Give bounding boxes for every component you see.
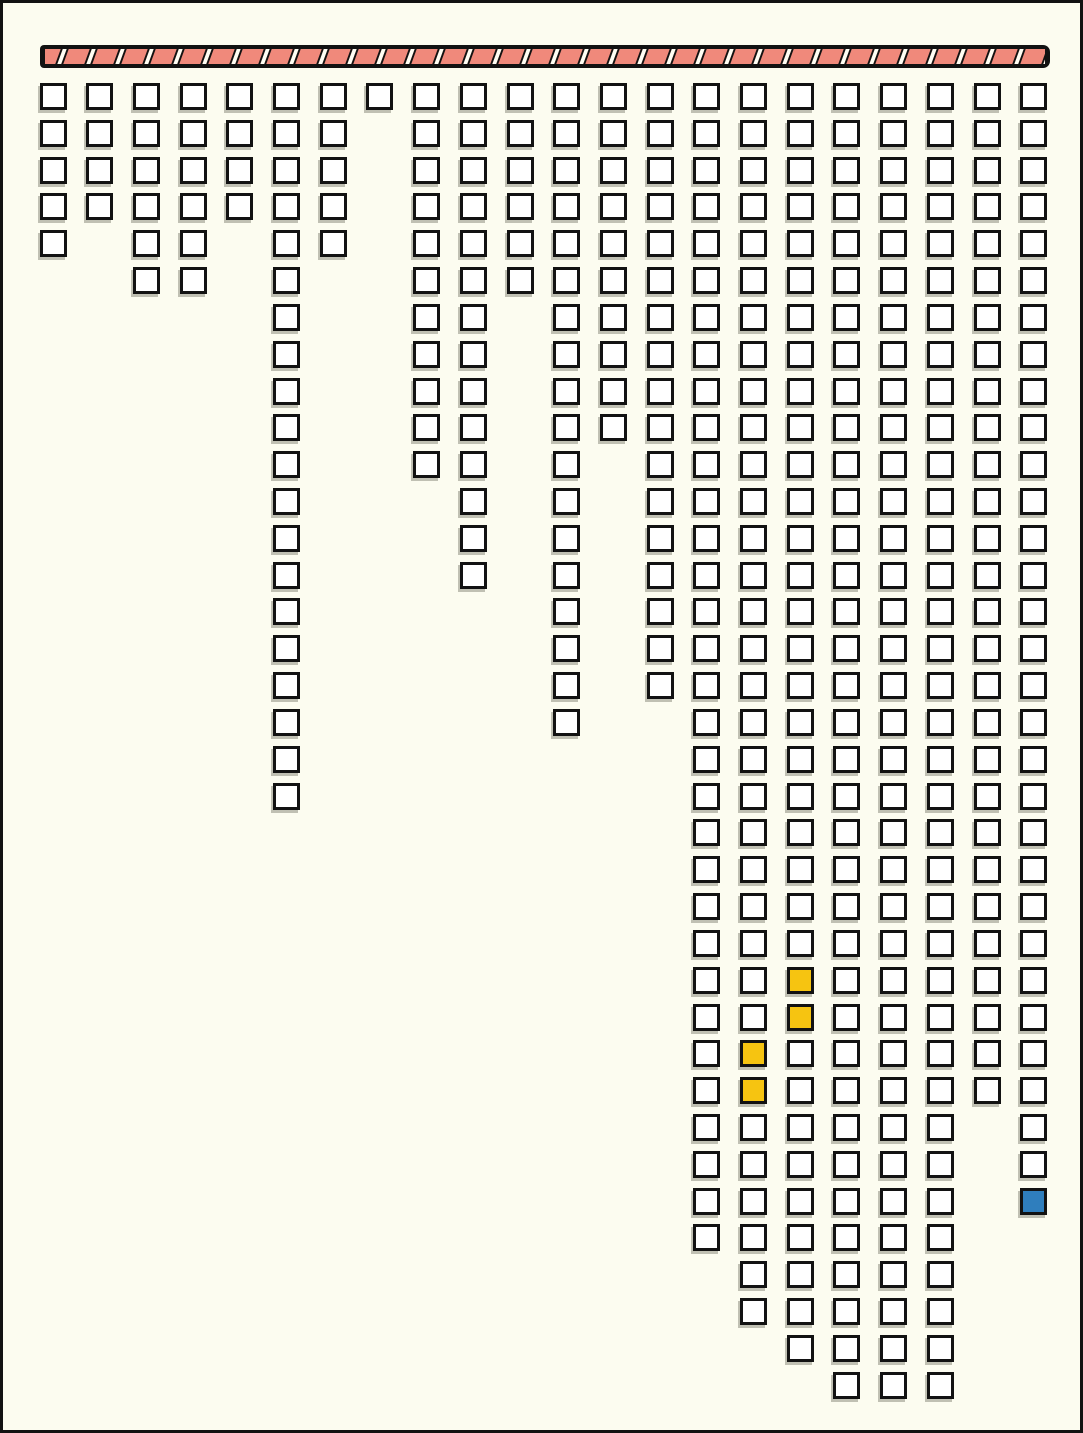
unit-square [740, 967, 767, 994]
unit-square [693, 856, 720, 883]
unit-square [787, 488, 814, 515]
unit-square [507, 120, 534, 147]
unit-square [787, 378, 814, 405]
unit-square [1020, 341, 1047, 368]
unit-square [1020, 856, 1047, 883]
unit-square [833, 635, 860, 662]
unit-square [1020, 378, 1047, 405]
unit-square [833, 1040, 860, 1067]
unit-square [974, 341, 1001, 368]
unit-square [927, 120, 954, 147]
unit-square [40, 120, 67, 147]
unit-square [460, 193, 487, 220]
unit-square [787, 1261, 814, 1288]
unit-square [927, 1335, 954, 1362]
unit-square [86, 157, 113, 184]
unit-square [974, 930, 1001, 957]
unit-square [693, 1004, 720, 1031]
unit-square [553, 157, 580, 184]
unit-square [413, 230, 440, 257]
unit-square [647, 193, 674, 220]
unit-square [833, 1151, 860, 1178]
unit-square [974, 488, 1001, 515]
unit-square [320, 83, 347, 110]
unit-square [273, 783, 300, 810]
unit-square [553, 267, 580, 294]
unit-square [647, 562, 674, 589]
unit-square [600, 414, 627, 441]
unit-square [927, 83, 954, 110]
unit-square [226, 157, 253, 184]
unit-square [693, 598, 720, 625]
unit-square [647, 230, 674, 257]
unit-square [647, 488, 674, 515]
unit-square [880, 341, 907, 368]
unit-square [880, 230, 907, 257]
unit-square [974, 893, 1001, 920]
unit-square [880, 856, 907, 883]
unit-square [273, 230, 300, 257]
unit-square [880, 488, 907, 515]
unit-square [1020, 525, 1047, 552]
unit-square [880, 672, 907, 699]
unit-square [1020, 819, 1047, 846]
unit-square [553, 525, 580, 552]
unit-square [693, 1224, 720, 1251]
unit-square [740, 1188, 767, 1215]
unit-square [273, 267, 300, 294]
unit-square [1020, 1077, 1047, 1104]
unit-square [740, 709, 767, 736]
unit-square [927, 1188, 954, 1215]
unit-square [740, 672, 767, 699]
unit-square [927, 746, 954, 773]
unit-square [693, 341, 720, 368]
unit-square [740, 1151, 767, 1178]
unit-square [600, 304, 627, 331]
unit-square [927, 267, 954, 294]
unit-square [927, 1114, 954, 1141]
unit-square [320, 230, 347, 257]
unit-square [180, 120, 207, 147]
unit-square [40, 230, 67, 257]
unit-square [693, 267, 720, 294]
unit-square [833, 672, 860, 699]
unit-square [740, 1004, 767, 1031]
unit-square [740, 488, 767, 515]
unit-square [693, 562, 720, 589]
unit-square [740, 819, 767, 846]
unit-square [460, 267, 487, 294]
unit-square [974, 414, 1001, 441]
unit-square [740, 120, 767, 147]
unit-square [974, 267, 1001, 294]
unit-square [787, 304, 814, 331]
unit-square [460, 488, 487, 515]
unit-square [693, 709, 720, 736]
unit-square [460, 341, 487, 368]
unit-square [693, 783, 720, 810]
unit-square [833, 1004, 860, 1031]
unit-square [740, 157, 767, 184]
unit-square [880, 1261, 907, 1288]
unit-square [693, 1040, 720, 1067]
unit-square [647, 672, 674, 699]
unit-square [600, 193, 627, 220]
unit-square [740, 83, 767, 110]
unit-square [927, 1261, 954, 1288]
unit-square [787, 120, 814, 147]
unit-square [787, 1298, 814, 1325]
unit-square [787, 1224, 814, 1251]
unit-square [273, 598, 300, 625]
unit-square [693, 1188, 720, 1215]
unit-square [553, 83, 580, 110]
unit-square [927, 783, 954, 810]
unit-square [880, 967, 907, 994]
unit-square [320, 157, 347, 184]
unit-square [693, 488, 720, 515]
unit-columns [3, 3, 1080, 1430]
unit-square [880, 1077, 907, 1104]
unit-square [787, 930, 814, 957]
unit-square [974, 1004, 1001, 1031]
unit-square [460, 83, 487, 110]
unit-square [647, 451, 674, 478]
unit-square [974, 157, 1001, 184]
unit-square [1020, 893, 1047, 920]
unit-square [974, 967, 1001, 994]
unit-square [833, 856, 860, 883]
unit-square [553, 341, 580, 368]
unit-square [320, 120, 347, 147]
unit-square [787, 562, 814, 589]
unit-square [693, 635, 720, 662]
unit-square [880, 267, 907, 294]
unit-square [974, 672, 1001, 699]
unit-square [787, 525, 814, 552]
unit-square-yellow [787, 967, 814, 994]
unit-square [86, 120, 113, 147]
unit-square [787, 451, 814, 478]
unit-square-yellow [740, 1077, 767, 1104]
unit-square [787, 414, 814, 441]
unit-square [787, 267, 814, 294]
unit-square [647, 120, 674, 147]
unit-square [693, 893, 720, 920]
unit-square [273, 709, 300, 736]
unit-square [880, 525, 907, 552]
unit-square [880, 598, 907, 625]
figure-canvas [0, 0, 1083, 1433]
unit-square [273, 672, 300, 699]
unit-square [740, 783, 767, 810]
unit-square [974, 856, 1001, 883]
unit-square [740, 525, 767, 552]
unit-square [833, 1077, 860, 1104]
unit-square [507, 267, 534, 294]
unit-square [180, 157, 207, 184]
unit-square [833, 451, 860, 478]
unit-square [273, 157, 300, 184]
unit-square [974, 819, 1001, 846]
unit-square [787, 1114, 814, 1141]
unit-square [974, 451, 1001, 478]
unit-square [740, 746, 767, 773]
unit-square [833, 1298, 860, 1325]
unit-square [880, 1224, 907, 1251]
unit-square [1020, 1040, 1047, 1067]
unit-square [833, 819, 860, 846]
unit-square [927, 709, 954, 736]
unit-square [693, 193, 720, 220]
unit-square [833, 562, 860, 589]
unit-square [460, 451, 487, 478]
unit-square [927, 1151, 954, 1178]
unit-square [740, 341, 767, 368]
unit-square [833, 1114, 860, 1141]
unit-square [974, 562, 1001, 589]
unit-square [833, 930, 860, 957]
unit-square [1020, 635, 1047, 662]
unit-square [880, 1298, 907, 1325]
unit-square [740, 193, 767, 220]
unit-square [553, 378, 580, 405]
unit-square [693, 1151, 720, 1178]
unit-square [740, 414, 767, 441]
unit-square [880, 1335, 907, 1362]
unit-square [40, 157, 67, 184]
unit-square [600, 267, 627, 294]
unit-square [693, 83, 720, 110]
unit-square [273, 746, 300, 773]
unit-square [880, 83, 907, 110]
unit-square [787, 672, 814, 699]
unit-square [927, 672, 954, 699]
unit-square [787, 783, 814, 810]
unit-square [693, 1077, 720, 1104]
unit-square [787, 1188, 814, 1215]
unit-square [880, 193, 907, 220]
unit-square [880, 1372, 907, 1399]
unit-square [133, 120, 160, 147]
unit-square [974, 598, 1001, 625]
unit-square [273, 414, 300, 441]
unit-square [647, 267, 674, 294]
unit-square [1020, 930, 1047, 957]
unit-square [86, 193, 113, 220]
unit-square [553, 672, 580, 699]
unit-square [880, 819, 907, 846]
unit-square [974, 1040, 1001, 1067]
unit-square [880, 783, 907, 810]
unit-square [413, 414, 440, 441]
unit-square [927, 819, 954, 846]
unit-square [740, 893, 767, 920]
unit-square [927, 488, 954, 515]
unit-square [460, 414, 487, 441]
unit-square [880, 562, 907, 589]
unit-square [740, 856, 767, 883]
unit-square [880, 930, 907, 957]
unit-square [740, 562, 767, 589]
unit-square [600, 378, 627, 405]
unit-square [1020, 1114, 1047, 1141]
unit-square [740, 598, 767, 625]
unit-square [693, 1114, 720, 1141]
unit-square [460, 562, 487, 589]
unit-square [880, 120, 907, 147]
unit-square [833, 1261, 860, 1288]
unit-square [833, 893, 860, 920]
unit-square [693, 120, 720, 147]
unit-square [740, 451, 767, 478]
unit-square [927, 1004, 954, 1031]
unit-square [1020, 562, 1047, 589]
unit-square [740, 230, 767, 257]
unit-square [880, 1040, 907, 1067]
unit-square [133, 83, 160, 110]
unit-square [180, 83, 207, 110]
unit-square [833, 120, 860, 147]
unit-square [833, 1224, 860, 1251]
unit-square [600, 157, 627, 184]
unit-square [553, 488, 580, 515]
unit-square [460, 157, 487, 184]
unit-square [1020, 120, 1047, 147]
unit-square [974, 635, 1001, 662]
unit-square [974, 525, 1001, 552]
unit-square [553, 709, 580, 736]
unit-square [133, 193, 160, 220]
unit-square [693, 157, 720, 184]
unit-square [833, 414, 860, 441]
unit-square [1020, 230, 1047, 257]
unit-square [927, 157, 954, 184]
unit-square [927, 856, 954, 883]
unit-square [927, 230, 954, 257]
unit-square [740, 635, 767, 662]
unit-square [974, 304, 1001, 331]
unit-square [273, 120, 300, 147]
unit-square [740, 378, 767, 405]
unit-square [133, 157, 160, 184]
unit-square [273, 562, 300, 589]
unit-square [880, 414, 907, 441]
unit-square [413, 341, 440, 368]
unit-square [693, 967, 720, 994]
unit-square [833, 193, 860, 220]
unit-square [693, 451, 720, 478]
unit-square [974, 378, 1001, 405]
unit-square [1020, 414, 1047, 441]
unit-square [273, 193, 300, 220]
unit-square [226, 193, 253, 220]
unit-square [880, 1151, 907, 1178]
unit-square [880, 304, 907, 331]
unit-square [927, 525, 954, 552]
unit-square [927, 598, 954, 625]
unit-square [787, 635, 814, 662]
unit-square [133, 267, 160, 294]
unit-square [647, 525, 674, 552]
unit-square [600, 83, 627, 110]
unit-square [647, 341, 674, 368]
unit-square [86, 83, 113, 110]
unit-square [507, 193, 534, 220]
unit-square [740, 304, 767, 331]
unit-square [273, 451, 300, 478]
unit-square [647, 598, 674, 625]
unit-square [787, 1077, 814, 1104]
unit-square [927, 635, 954, 662]
unit-square [740, 1298, 767, 1325]
unit-square [226, 120, 253, 147]
unit-square [413, 267, 440, 294]
unit-square [740, 1261, 767, 1288]
unit-square [693, 819, 720, 846]
unit-square [460, 378, 487, 405]
unit-square [1020, 193, 1047, 220]
unit-square [833, 709, 860, 736]
unit-square [833, 378, 860, 405]
unit-square [273, 635, 300, 662]
unit-square [460, 525, 487, 552]
unit-square [927, 1077, 954, 1104]
unit-square [880, 157, 907, 184]
unit-square [1020, 783, 1047, 810]
unit-square [927, 304, 954, 331]
unit-square [740, 930, 767, 957]
unit-square [740, 267, 767, 294]
unit-square [600, 230, 627, 257]
unit-square [927, 893, 954, 920]
unit-square [507, 83, 534, 110]
unit-square [413, 378, 440, 405]
unit-square [880, 709, 907, 736]
unit-square [833, 1188, 860, 1215]
unit-square [1020, 967, 1047, 994]
unit-square [647, 304, 674, 331]
unit-square [553, 562, 580, 589]
unit-square [40, 193, 67, 220]
unit-square [273, 525, 300, 552]
unit-square [1020, 746, 1047, 773]
unit-square [833, 267, 860, 294]
unit-square [927, 341, 954, 368]
unit-square [273, 378, 300, 405]
unit-square [740, 1224, 767, 1251]
unit-square [787, 341, 814, 368]
unit-square [180, 230, 207, 257]
unit-square [553, 230, 580, 257]
unit-square [880, 1188, 907, 1215]
unit-square [833, 525, 860, 552]
unit-square [927, 451, 954, 478]
unit-square [413, 193, 440, 220]
unit-square [880, 451, 907, 478]
unit-square [693, 304, 720, 331]
unit-square [413, 451, 440, 478]
unit-square [1020, 1151, 1047, 1178]
unit-square [693, 230, 720, 257]
unit-square [460, 230, 487, 257]
unit-square [833, 304, 860, 331]
unit-square [787, 1040, 814, 1067]
unit-square [833, 1335, 860, 1362]
unit-square [320, 193, 347, 220]
unit-square [833, 598, 860, 625]
